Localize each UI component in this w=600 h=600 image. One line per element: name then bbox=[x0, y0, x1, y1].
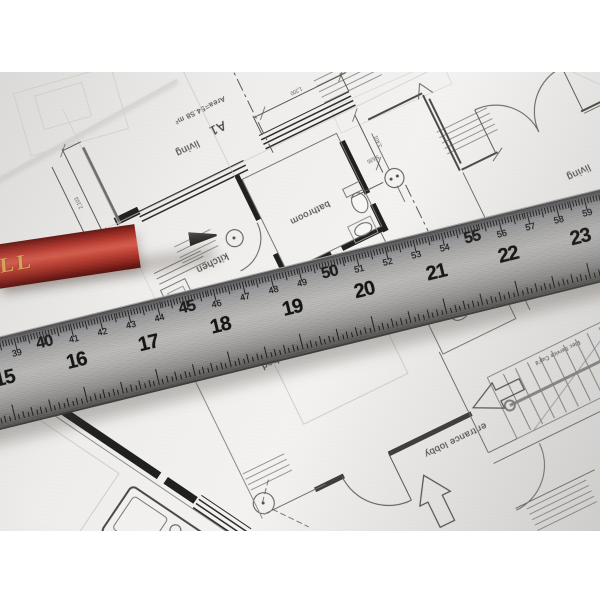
ruler-tick bbox=[531, 288, 533, 294]
ruler-tick bbox=[361, 253, 363, 259]
ruler-tick bbox=[318, 336, 321, 345]
ruler-tick bbox=[544, 208, 546, 214]
ruler-tick bbox=[11, 404, 16, 420]
ruler-tick bbox=[259, 278, 261, 284]
ruler-tick bbox=[387, 246, 389, 252]
ruler-tick bbox=[426, 310, 429, 319]
ruler-tick bbox=[19, 337, 21, 343]
ruler-tick bbox=[310, 265, 312, 271]
ruler-tick bbox=[171, 376, 173, 382]
ruler-tick bbox=[524, 213, 526, 219]
ruler-tick bbox=[5, 340, 7, 346]
ruler-tick bbox=[90, 319, 92, 325]
ruler-tick bbox=[390, 246, 392, 252]
ruler-tick bbox=[550, 206, 552, 212]
ruler-tick bbox=[510, 216, 512, 222]
ruler-tick bbox=[296, 269, 298, 275]
ruler-tick bbox=[589, 196, 591, 202]
ruler-tick bbox=[495, 296, 497, 302]
ruler-tick bbox=[238, 358, 241, 365]
ruler-tick bbox=[407, 241, 409, 247]
ruler-tick bbox=[371, 316, 376, 332]
ruler-tick bbox=[552, 206, 554, 212]
ruler-tick bbox=[478, 224, 480, 230]
ruler-tick bbox=[63, 403, 65, 409]
ruler-tick bbox=[233, 284, 235, 290]
ruler-tick bbox=[164, 301, 166, 307]
ruler-tick bbox=[468, 303, 470, 309]
ruler-tick bbox=[150, 304, 152, 310]
ruler-tick bbox=[192, 364, 196, 376]
ruler-tick bbox=[16, 337, 18, 343]
ruler-tick bbox=[544, 283, 547, 290]
ruler-tick bbox=[430, 236, 432, 242]
ruler-tick bbox=[48, 399, 52, 411]
ruler-tick bbox=[360, 330, 362, 336]
ruler-tick bbox=[250, 280, 252, 286]
ruler-tick bbox=[73, 323, 75, 329]
ruler-tick bbox=[93, 318, 95, 324]
ruler-tick bbox=[224, 286, 226, 292]
ruler-tick bbox=[438, 234, 440, 240]
ruler-tick bbox=[540, 285, 542, 291]
ruler-tick bbox=[472, 301, 475, 308]
ruler-tick bbox=[301, 267, 303, 273]
ruler-tick bbox=[267, 276, 269, 282]
ruler-tick bbox=[297, 345, 299, 351]
ruler-tick bbox=[347, 256, 349, 262]
ruler-tick bbox=[67, 325, 69, 331]
ruler-tick bbox=[587, 263, 592, 279]
ruler-tick bbox=[576, 277, 578, 283]
window-symbol bbox=[193, 495, 252, 531]
ruler-tick bbox=[239, 283, 241, 289]
ruler-tick bbox=[570, 274, 573, 283]
ruler-tick bbox=[336, 259, 338, 265]
ruler-tick bbox=[558, 281, 560, 287]
ruler-tick bbox=[344, 257, 346, 263]
ruler-tick bbox=[432, 312, 434, 318]
ruler-tick bbox=[256, 354, 259, 361]
ruler-tick bbox=[534, 283, 537, 292]
photograph: A1 Area=54.58 m² living living bathroom … bbox=[0, 72, 600, 531]
ruler-tick bbox=[387, 323, 389, 329]
ruler-tick bbox=[166, 376, 169, 383]
ruler-tick bbox=[87, 320, 89, 326]
ruler-tick bbox=[324, 338, 326, 344]
ruler-tick bbox=[2, 341, 4, 347]
ruler-tick bbox=[393, 245, 395, 251]
ruler-tick bbox=[94, 393, 97, 400]
ruler-tick bbox=[498, 292, 501, 301]
ruler-tick bbox=[45, 407, 47, 413]
ruler-tick bbox=[459, 305, 461, 311]
ruler-tick bbox=[103, 389, 106, 398]
ruler-tick bbox=[130, 384, 133, 391]
ruler-tick bbox=[53, 328, 55, 334]
ruler-tick bbox=[513, 292, 515, 298]
ruler-tick bbox=[9, 416, 11, 422]
ruler-tick bbox=[278, 273, 280, 279]
ruler-tick bbox=[220, 362, 223, 369]
ruler-tick bbox=[421, 238, 423, 244]
ruler-tick bbox=[201, 292, 203, 298]
ruler-tick bbox=[204, 291, 206, 297]
ruler-tick bbox=[58, 402, 61, 409]
ruler-tick bbox=[350, 255, 352, 261]
ruler-tick bbox=[423, 314, 425, 320]
ruler-tick bbox=[225, 363, 227, 369]
ruler-tick bbox=[522, 290, 524, 296]
ruler-tick bbox=[367, 251, 369, 257]
ruler-tick bbox=[18, 414, 20, 420]
ruler-inch-number: 22 bbox=[496, 243, 520, 267]
ruler-tick bbox=[382, 323, 385, 330]
ruler-tick bbox=[381, 248, 383, 254]
ruler-tick bbox=[567, 279, 569, 285]
ruler-tick bbox=[564, 203, 566, 209]
ruler-tick bbox=[227, 351, 232, 367]
ruler-inch-number: 20 bbox=[352, 278, 376, 302]
ruler-tick bbox=[273, 274, 275, 280]
ruler-tick bbox=[592, 196, 594, 202]
ruler-inch-number: 19 bbox=[280, 296, 304, 320]
ruler-tick bbox=[119, 312, 121, 318]
ruler-tick bbox=[552, 276, 556, 288]
ruler-inch-number: 21 bbox=[424, 260, 448, 284]
ruler-tick bbox=[477, 301, 479, 307]
ruler-tick bbox=[575, 200, 577, 206]
ruler-tick bbox=[274, 349, 277, 356]
ruler-tick bbox=[378, 325, 380, 331]
ruler-tick bbox=[346, 331, 349, 338]
ruler-tick bbox=[136, 308, 138, 314]
ruler-tick bbox=[358, 253, 360, 259]
ruler-tick bbox=[578, 199, 580, 205]
ruler-inch-number: 15 bbox=[0, 366, 17, 390]
ruler-tick bbox=[595, 195, 597, 201]
ruler-tick bbox=[126, 387, 128, 393]
ruler-tick bbox=[594, 272, 596, 278]
ruler-tick bbox=[148, 380, 151, 387]
ruler-tick bbox=[306, 343, 308, 349]
ruler-tick bbox=[22, 336, 24, 342]
ruler-tick bbox=[107, 315, 109, 321]
ruler-tick bbox=[567, 202, 569, 208]
ruler-tick bbox=[173, 299, 175, 305]
ruler-tick bbox=[30, 334, 32, 340]
ruler-tick bbox=[508, 292, 511, 299]
ruler-tick bbox=[62, 326, 64, 332]
ruler-tick bbox=[219, 288, 221, 294]
ruler-tick bbox=[264, 276, 266, 282]
ruler-tick bbox=[581, 199, 583, 205]
ruler-tick bbox=[526, 287, 529, 294]
ruler-tick bbox=[243, 358, 245, 364]
ruler-inch-number: 17 bbox=[136, 331, 160, 355]
ruler-tick bbox=[246, 354, 249, 363]
ruler-tick bbox=[400, 318, 403, 325]
ruler-tick bbox=[299, 334, 304, 350]
ruler-tick bbox=[364, 252, 366, 258]
ruler-tick bbox=[369, 327, 371, 333]
ruler-tick bbox=[487, 222, 489, 228]
ruler-tick bbox=[401, 243, 403, 249]
ruler-tick bbox=[316, 264, 318, 270]
ruler-tick bbox=[396, 321, 398, 327]
ruler-tick bbox=[538, 209, 540, 215]
ruler-tick bbox=[507, 217, 509, 223]
ruler-tick bbox=[353, 255, 355, 261]
ruler-tick bbox=[561, 203, 563, 209]
ruler-tick bbox=[135, 385, 137, 391]
ruler-tick bbox=[287, 271, 289, 277]
ruler-tick bbox=[310, 340, 313, 347]
ruler-tick bbox=[521, 213, 523, 219]
ruler-tick bbox=[515, 281, 520, 297]
ruler-tick bbox=[22, 411, 25, 418]
ruler-tick bbox=[120, 382, 124, 394]
ruler-tick bbox=[354, 327, 357, 336]
ruler-tick bbox=[375, 249, 377, 255]
ruler-tick bbox=[108, 391, 110, 397]
ruler-tick bbox=[261, 277, 263, 283]
ruler-tick bbox=[580, 274, 583, 281]
ruler-tick bbox=[0, 418, 2, 424]
ruler-tick bbox=[490, 296, 493, 303]
ruler-tick bbox=[167, 300, 169, 306]
ruler-tick bbox=[492, 220, 494, 226]
ruler-tick bbox=[414, 316, 416, 322]
ruler-tick bbox=[572, 201, 574, 207]
ruler-tick bbox=[65, 325, 67, 331]
pencil-wood-tip bbox=[131, 216, 197, 268]
ruler-tick bbox=[159, 302, 161, 308]
ruler-tick bbox=[116, 313, 118, 319]
ruler-tick bbox=[281, 272, 283, 278]
photo-frame: A1 Area=54.58 m² living living bathroom … bbox=[0, 0, 600, 600]
ruler-tick bbox=[67, 398, 70, 407]
ruler-tick bbox=[207, 367, 209, 373]
ruler-tick bbox=[364, 327, 367, 334]
ruler-tick bbox=[495, 220, 497, 226]
ruler-tick bbox=[279, 349, 281, 355]
ruler-tick bbox=[162, 302, 164, 308]
ruler-tick bbox=[79, 322, 81, 328]
ruler-tick bbox=[418, 238, 420, 244]
ruler-tick bbox=[441, 310, 443, 316]
ruler-tick bbox=[390, 318, 393, 327]
ruler-tick bbox=[112, 389, 115, 396]
ruler-tick bbox=[454, 305, 457, 312]
ruler-tick bbox=[283, 345, 286, 354]
ruler-tick bbox=[31, 407, 34, 416]
ruler-tick bbox=[378, 248, 380, 254]
ruler-tick bbox=[253, 279, 255, 285]
ruler-tick bbox=[50, 329, 52, 335]
ruler-tick bbox=[549, 283, 551, 289]
ruler-tick bbox=[328, 336, 331, 343]
ruler-tick bbox=[202, 367, 205, 374]
ruler-tick bbox=[76, 323, 78, 329]
ruler-tick bbox=[462, 301, 465, 310]
ruler-tick bbox=[261, 354, 263, 360]
pencil-imprint-text: LL bbox=[0, 248, 34, 279]
ruler-tick bbox=[585, 274, 587, 280]
ruler-tick bbox=[162, 378, 164, 384]
ruler-tick bbox=[82, 321, 84, 327]
ruler-tick bbox=[453, 230, 455, 236]
ruler-tick bbox=[587, 197, 589, 203]
ruler-tick bbox=[189, 372, 191, 378]
ruler-tick bbox=[444, 232, 446, 238]
ruler-tick bbox=[130, 309, 132, 315]
ruler-tick bbox=[210, 290, 212, 296]
ruler-tick bbox=[196, 293, 198, 299]
ruler-tick bbox=[450, 231, 452, 237]
ruler-tick bbox=[405, 319, 407, 325]
ruler-tick bbox=[144, 306, 146, 312]
ruler-tick bbox=[216, 365, 218, 371]
ruler-tick bbox=[436, 309, 439, 316]
ruler-tick bbox=[175, 371, 178, 380]
ruler-tick bbox=[27, 411, 29, 417]
ruler-tick bbox=[139, 307, 141, 313]
ruler-tick bbox=[501, 218, 503, 224]
ruler-tick bbox=[8, 339, 10, 345]
ruler-tick bbox=[90, 396, 92, 402]
ruler-tick bbox=[180, 374, 182, 380]
ruler-inch-number: 18 bbox=[208, 313, 232, 337]
ruler-inch-number: 23 bbox=[568, 225, 592, 249]
ruler-tick bbox=[518, 214, 520, 220]
ruler-tick bbox=[216, 288, 218, 294]
ruler-tick bbox=[304, 267, 306, 273]
ruler-tick bbox=[247, 281, 249, 287]
ruler-tick bbox=[418, 314, 421, 321]
ruler-tick bbox=[338, 258, 340, 264]
ruler-tick bbox=[117, 389, 119, 395]
ruler-tick bbox=[72, 400, 74, 406]
ruler-tick bbox=[315, 341, 317, 347]
ruler-tick bbox=[447, 232, 449, 238]
ruler-tick bbox=[333, 336, 335, 342]
ruler-tick bbox=[153, 380, 155, 386]
ruler-tick bbox=[480, 293, 484, 305]
ruler-tick bbox=[530, 211, 532, 217]
ruler-tick bbox=[435, 234, 437, 240]
ruler-tick bbox=[96, 318, 98, 324]
ruler-tick bbox=[25, 335, 27, 341]
ruler-tick bbox=[547, 207, 549, 213]
ruler-tick bbox=[276, 274, 278, 280]
ruler-tick bbox=[211, 363, 214, 372]
ruler-tick bbox=[221, 287, 223, 293]
pencil-graphite-tip bbox=[188, 227, 218, 247]
ruler-tick bbox=[207, 290, 209, 296]
ruler-tick bbox=[193, 294, 195, 300]
ruler-tick bbox=[270, 352, 272, 358]
ruler-tick bbox=[486, 299, 488, 305]
ruler-tick bbox=[102, 316, 104, 322]
ruler-tick bbox=[264, 346, 268, 358]
ruler-tick bbox=[198, 369, 200, 375]
ruler-tick bbox=[99, 394, 101, 400]
ruler-tick bbox=[562, 278, 565, 285]
ruler-tick bbox=[252, 356, 254, 362]
ruler-tick bbox=[244, 281, 246, 287]
ruler-tick bbox=[36, 409, 38, 415]
ruler-tick bbox=[40, 407, 43, 414]
ruler-inch-number: 16 bbox=[64, 349, 88, 373]
ruler-tick bbox=[292, 345, 295, 352]
ruler-tick bbox=[155, 369, 160, 385]
ruler-tick bbox=[4, 415, 7, 422]
ruler-tick bbox=[307, 266, 309, 272]
ruler-tick bbox=[433, 235, 435, 241]
ruler-tick bbox=[443, 298, 448, 314]
ruler-tick bbox=[76, 398, 79, 405]
ruler-tick bbox=[144, 383, 146, 389]
ruler-tick bbox=[504, 217, 506, 223]
ruler-tick bbox=[54, 405, 56, 411]
ruler-tick bbox=[124, 311, 126, 317]
ruler-tick bbox=[408, 311, 412, 323]
ruler-tick bbox=[515, 215, 517, 221]
ruler-tick bbox=[290, 270, 292, 276]
ruler-tick bbox=[184, 371, 187, 378]
ruler-tick bbox=[373, 250, 375, 256]
ruler-tick bbox=[396, 244, 398, 250]
ruler-tick bbox=[558, 204, 560, 210]
ruler-tick bbox=[504, 294, 506, 300]
ruler-tick bbox=[490, 221, 492, 227]
ruler-tick bbox=[133, 309, 135, 315]
ruler-tick bbox=[81, 398, 83, 404]
ruler-tick bbox=[342, 334, 344, 340]
ruler-tick bbox=[59, 327, 61, 333]
ruler-tick bbox=[288, 347, 290, 353]
ruler-tick bbox=[10, 339, 12, 345]
ruler-tick bbox=[415, 239, 417, 245]
ruler-tick bbox=[234, 361, 236, 367]
ruler-tick bbox=[424, 237, 426, 243]
ruler-tick bbox=[83, 387, 88, 403]
ruler-tick bbox=[236, 283, 238, 289]
ruler-tick bbox=[230, 285, 232, 291]
ruler-tick bbox=[336, 329, 340, 341]
ruler-tick bbox=[139, 380, 142, 389]
ruler-tick bbox=[532, 210, 534, 216]
ruler-tick bbox=[147, 305, 149, 311]
ruler-tick bbox=[110, 314, 112, 320]
ruler-tick bbox=[410, 241, 412, 247]
ruler-tick bbox=[458, 229, 460, 235]
ruler-tick bbox=[122, 311, 124, 317]
ruler-tick bbox=[450, 308, 452, 314]
ruler-tick bbox=[153, 304, 155, 310]
ruler-tick bbox=[535, 210, 537, 216]
ruler-tick bbox=[351, 332, 353, 338]
ruler-tick bbox=[105, 316, 107, 322]
ruler-tick bbox=[404, 242, 406, 248]
ruler-tick bbox=[481, 223, 483, 229]
ruler-tick bbox=[293, 269, 295, 275]
